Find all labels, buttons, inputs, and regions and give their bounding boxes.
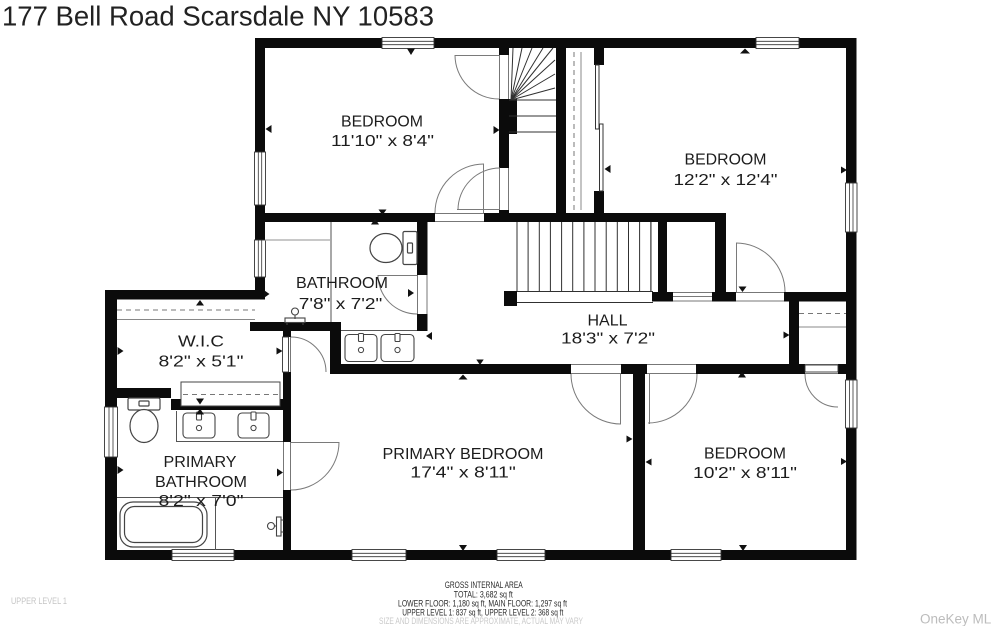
svg-text:7'8" x 7'2": 7'8" x 7'2" bbox=[299, 296, 383, 313]
svg-text:UPPER LEVEL 1: UPPER LEVEL 1 bbox=[11, 596, 67, 606]
svg-text:HALL: HALL bbox=[588, 313, 628, 330]
svg-text:8'2" x 7'0": 8'2" x 7'0" bbox=[159, 493, 244, 510]
svg-text:BEDROOM: BEDROOM bbox=[341, 114, 423, 131]
svg-text:PRIMARY BEDROOM: PRIMARY BEDROOM bbox=[383, 446, 544, 463]
svg-text:W.I.C: W.I.C bbox=[178, 334, 224, 351]
svg-text:12'2" x 12'4": 12'2" x 12'4" bbox=[674, 172, 778, 189]
svg-text:BATHROOM: BATHROOM bbox=[155, 474, 247, 491]
svg-text:18'3" x 7'2": 18'3" x 7'2" bbox=[561, 331, 655, 348]
svg-text:10'2" x 8'11": 10'2" x 8'11" bbox=[693, 465, 797, 482]
svg-text:SIZE AND DIMENSIONS ARE APPROX: SIZE AND DIMENSIONS ARE APPROXIMATE, ACT… bbox=[379, 616, 583, 626]
svg-text:BEDROOM: BEDROOM bbox=[685, 152, 767, 169]
svg-text:8'2" x 5'1": 8'2" x 5'1" bbox=[159, 354, 244, 371]
svg-text:BATHROOM: BATHROOM bbox=[296, 275, 388, 292]
svg-text:PRIMARY: PRIMARY bbox=[164, 454, 237, 471]
svg-text:17'4" x 8'11": 17'4" x 8'11" bbox=[410, 465, 516, 482]
svg-text:OneKey MLS: OneKey MLS bbox=[920, 612, 991, 626]
svg-text:BEDROOM: BEDROOM bbox=[704, 446, 786, 463]
svg-text:11'10" x 8'4": 11'10" x 8'4" bbox=[331, 133, 434, 150]
svg-text:177 Bell Road Scarsdale NY 105: 177 Bell Road Scarsdale NY 10583 bbox=[2, 1, 434, 32]
svg-text:GROSS INTERNAL AREA: GROSS INTERNAL AREA bbox=[445, 580, 523, 590]
